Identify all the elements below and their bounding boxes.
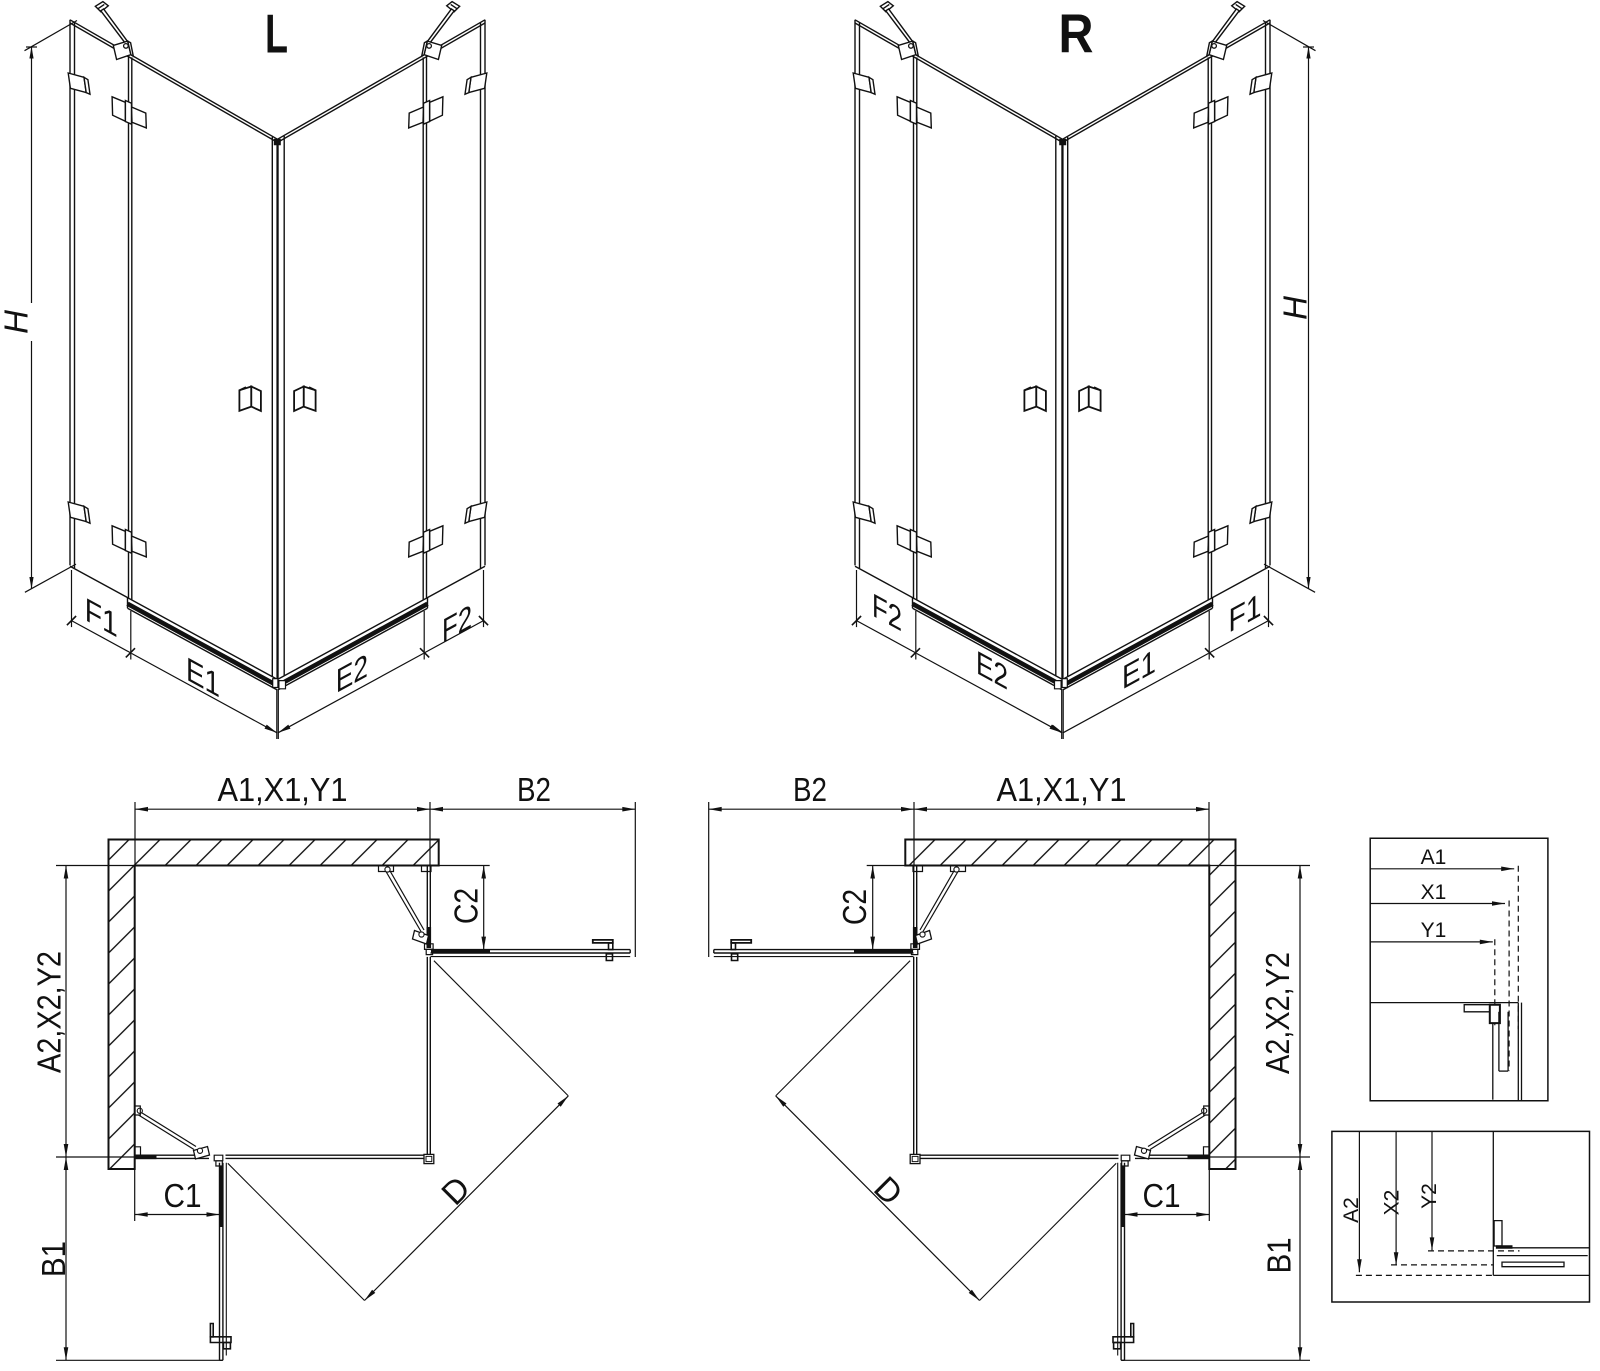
svg-text:H: H <box>1277 296 1314 320</box>
svg-text:A1: A1 <box>1421 846 1447 869</box>
svg-text:H: H <box>0 310 35 334</box>
svg-text:A2,X2,Y2: A2,X2,Y2 <box>1259 952 1296 1074</box>
svg-text:B1: B1 <box>35 1241 72 1277</box>
svg-text:C1: C1 <box>1143 1177 1181 1214</box>
svg-text:L: L <box>265 3 288 65</box>
svg-text:Y1: Y1 <box>1421 919 1447 942</box>
svg-text:Y2: Y2 <box>1418 1183 1441 1209</box>
svg-text:A2: A2 <box>1340 1197 1363 1223</box>
svg-text:R: R <box>1059 3 1094 65</box>
svg-text:X1: X1 <box>1421 881 1447 904</box>
svg-text:A1,X1,Y1: A1,X1,Y1 <box>997 771 1127 808</box>
svg-text:A2,X2,Y2: A2,X2,Y2 <box>31 951 68 1073</box>
svg-text:A1,X1,Y1: A1,X1,Y1 <box>218 771 348 808</box>
svg-text:C2: C2 <box>448 888 485 924</box>
svg-text:C2: C2 <box>836 889 873 925</box>
svg-text:C1: C1 <box>164 1177 202 1214</box>
svg-text:X2: X2 <box>1381 1190 1404 1216</box>
svg-text:B1: B1 <box>1260 1237 1297 1273</box>
svg-text:B2: B2 <box>517 771 551 808</box>
svg-text:B2: B2 <box>793 771 827 808</box>
